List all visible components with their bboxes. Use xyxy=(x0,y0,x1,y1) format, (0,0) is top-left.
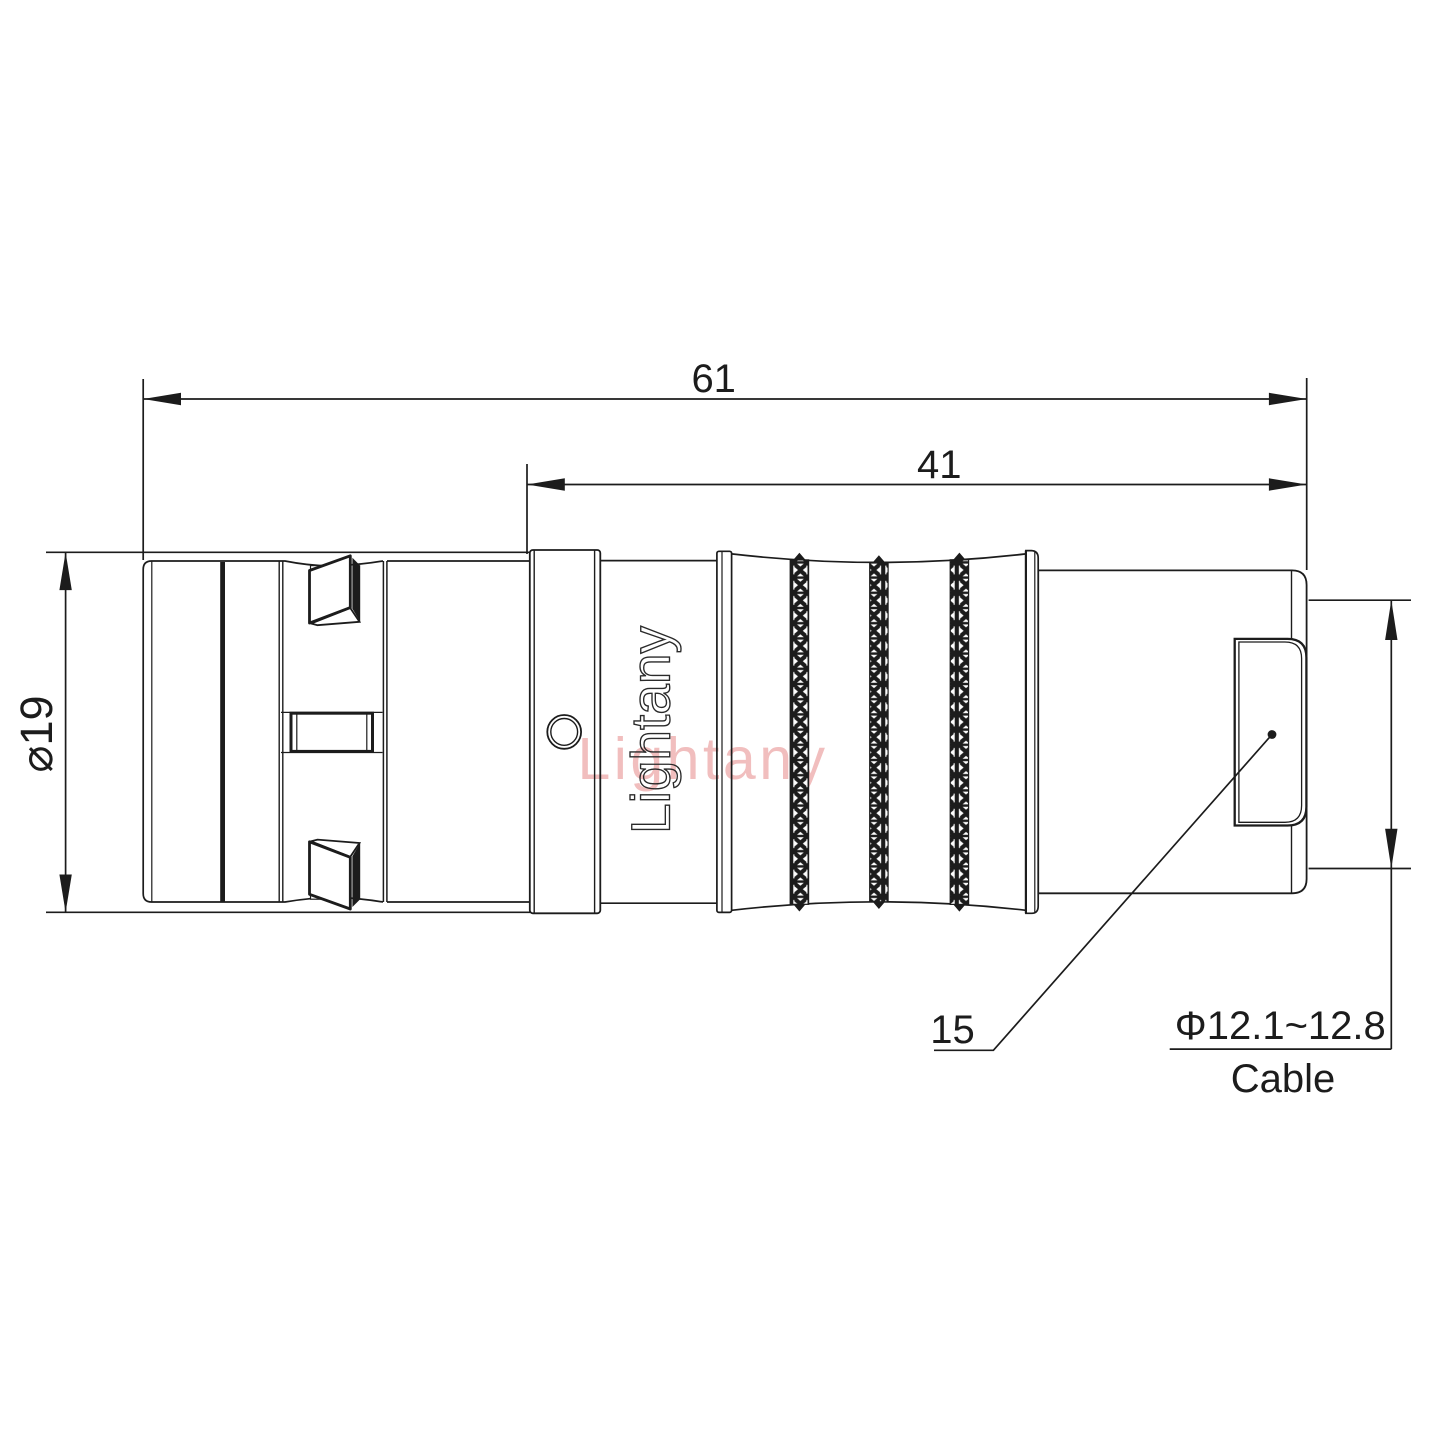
svg-text:15: 15 xyxy=(930,1008,975,1052)
svg-text:Φ12.1~12.8: Φ12.1~12.8 xyxy=(1175,1004,1386,1048)
svg-text:61: 61 xyxy=(691,357,736,401)
svg-text:Cable: Cable xyxy=(1231,1057,1336,1101)
svg-text:Lightany: Lightany xyxy=(620,626,682,834)
svg-text:41: 41 xyxy=(917,443,962,487)
svg-text:⌀19: ⌀19 xyxy=(11,695,62,772)
